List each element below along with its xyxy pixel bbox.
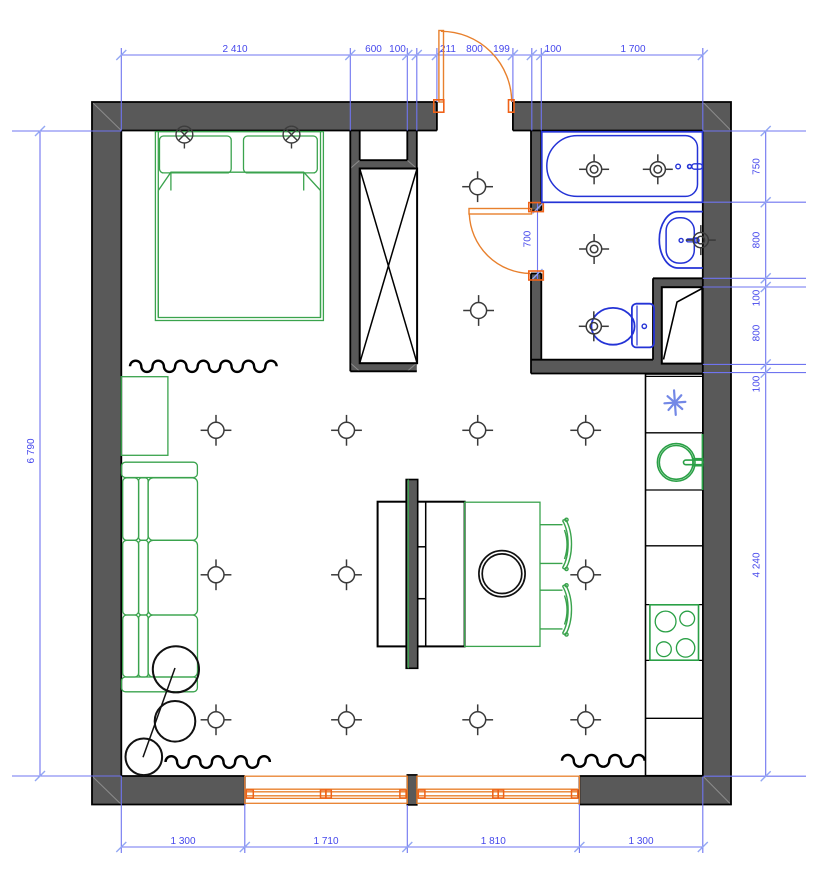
svg-text:2 410: 2 410 bbox=[222, 44, 247, 55]
svg-text:1 700: 1 700 bbox=[620, 44, 645, 55]
svg-text:800: 800 bbox=[752, 324, 763, 341]
svg-text:4 240: 4 240 bbox=[752, 552, 763, 577]
svg-text:100: 100 bbox=[752, 375, 763, 392]
svg-text:1 710: 1 710 bbox=[313, 836, 338, 847]
svg-text:211: 211 bbox=[440, 44, 456, 55]
svg-text:1 810: 1 810 bbox=[481, 836, 506, 847]
svg-text:100: 100 bbox=[389, 44, 406, 55]
svg-text:6 790: 6 790 bbox=[26, 438, 37, 463]
svg-text:750: 750 bbox=[752, 158, 763, 175]
svg-text:199: 199 bbox=[493, 44, 510, 55]
svg-text:100: 100 bbox=[545, 44, 562, 55]
svg-text:1 300: 1 300 bbox=[628, 836, 653, 847]
svg-text:700: 700 bbox=[523, 230, 534, 247]
svg-text:100: 100 bbox=[752, 289, 763, 306]
svg-text:600: 600 bbox=[365, 44, 382, 55]
svg-text:1 300: 1 300 bbox=[170, 836, 195, 847]
svg-text:800: 800 bbox=[752, 231, 763, 248]
svg-text:800: 800 bbox=[466, 44, 483, 55]
